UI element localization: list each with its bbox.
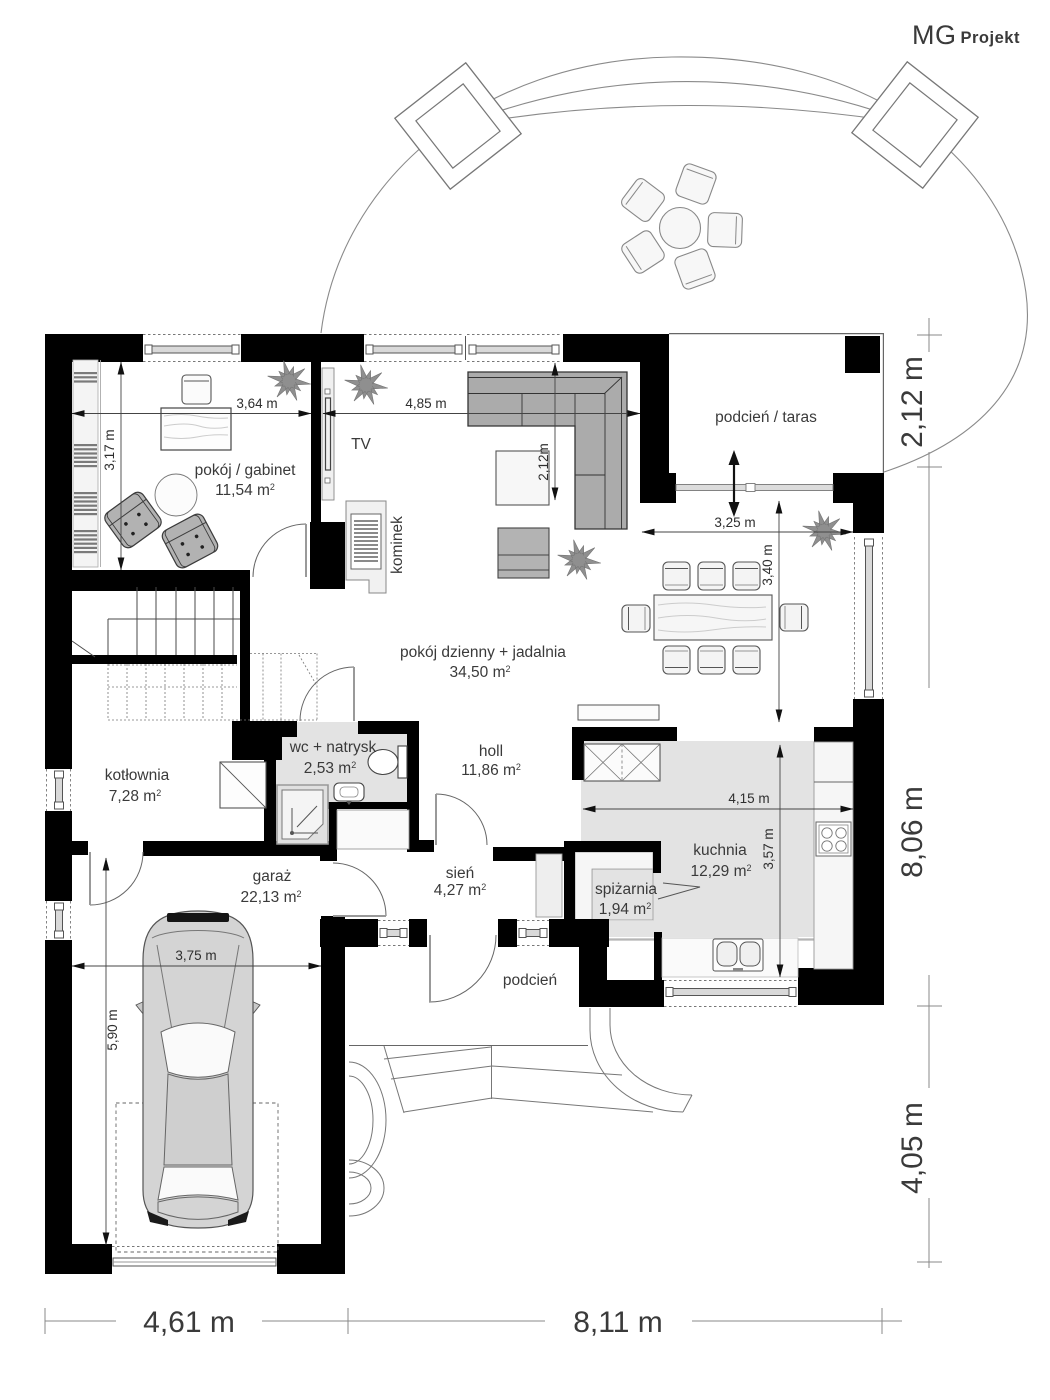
svg-text:spiżarnia: spiżarnia <box>595 881 657 898</box>
svg-text:4,27 m2: 4,27 m2 <box>434 882 486 899</box>
svg-text:22,13 m2: 22,13 m2 <box>240 889 301 906</box>
svg-text:2,53 m2: 2,53 m2 <box>304 760 356 777</box>
svg-text:5,90 m: 5,90 m <box>105 1009 120 1050</box>
svg-text:podcień / taras: podcień / taras <box>715 409 817 426</box>
svg-text:12,29 m2: 12,29 m2 <box>690 863 751 880</box>
svg-text:3,75 m: 3,75 m <box>175 948 216 963</box>
svg-text:garaż: garaż <box>253 868 292 885</box>
svg-text:8,06 m: 8,06 m <box>896 786 929 878</box>
svg-text:holl: holl <box>479 743 503 760</box>
svg-text:kominek: kominek <box>389 516 406 574</box>
svg-text:sień: sień <box>446 865 474 882</box>
svg-text:4,15 m: 4,15 m <box>728 791 769 806</box>
svg-text:3,57 m: 3,57 m <box>761 828 776 869</box>
svg-text:3,40 m: 3,40 m <box>760 544 775 585</box>
svg-text:11,54 m2: 11,54 m2 <box>215 482 275 499</box>
svg-text:34,50 m2: 34,50 m2 <box>449 664 510 681</box>
svg-text:4,85 m: 4,85 m <box>405 396 446 411</box>
svg-text:3,25 m: 3,25 m <box>714 515 755 530</box>
svg-text:wc + natrysk: wc + natrysk <box>289 739 377 756</box>
svg-text:2,12m: 2,12m <box>536 443 551 481</box>
svg-text:3,64 m: 3,64 m <box>236 396 277 411</box>
svg-text:4,05 m: 4,05 m <box>896 1102 929 1194</box>
svg-text:pokój / gabinet: pokój / gabinet <box>195 462 297 479</box>
svg-text:3,17 m: 3,17 m <box>102 429 117 470</box>
svg-text:2,12 m: 2,12 m <box>896 356 929 448</box>
svg-text:11,86 m2: 11,86 m2 <box>461 762 521 779</box>
svg-text:8,11 m: 8,11 m <box>573 1306 663 1339</box>
svg-text:TV: TV <box>351 436 371 453</box>
svg-text:1,94 m2: 1,94 m2 <box>599 901 651 918</box>
svg-text:4,61 m: 4,61 m <box>143 1306 235 1339</box>
svg-text:pokój dzienny + jadalnia: pokój dzienny + jadalnia <box>400 644 566 661</box>
svg-text:7,28 m2: 7,28 m2 <box>109 788 161 805</box>
svg-text:kotłownia: kotłownia <box>105 767 170 784</box>
svg-text:kuchnia: kuchnia <box>693 842 747 859</box>
svg-text:podcień: podcień <box>503 972 557 989</box>
